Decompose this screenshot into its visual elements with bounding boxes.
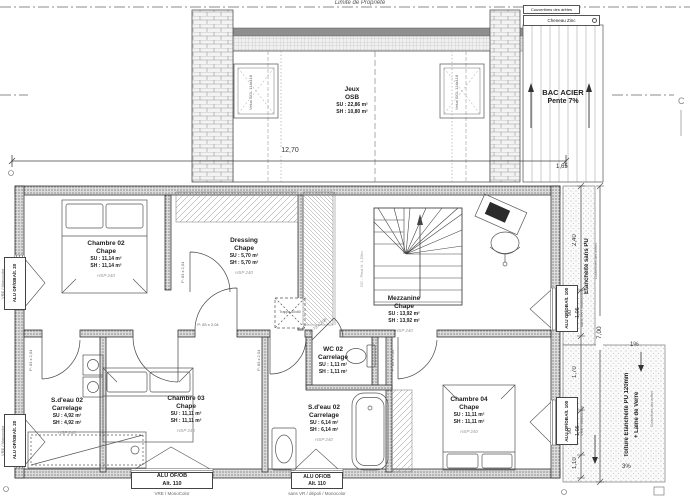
- room-hsp: HSP 240: [208, 270, 280, 276]
- room-su: SU : 13,92 m²: [368, 311, 440, 318]
- slope-1pct: 1%: [630, 342, 639, 348]
- room-name: Chambre 03: [150, 395, 222, 403]
- gutter-outlet-icon: [592, 18, 597, 23]
- trappe-label: Trappe 60x60: [276, 310, 304, 314]
- dim-total-width: 12,70: [270, 147, 310, 154]
- cheneau-box: Cheneau Zinc: [523, 15, 600, 26]
- dim-165: 1,65: [556, 164, 568, 170]
- room-su: SU : 5,70 m²: [208, 253, 280, 260]
- room-floor: Chape: [150, 403, 222, 411]
- room-label-sdeau-gauche: S.d'eau 02 Carrelage SU : 4,92 m² SH : 4…: [31, 397, 103, 435]
- room-sh: SH : 10,80 m²: [316, 109, 388, 116]
- room-floor: Chape: [70, 248, 142, 256]
- floor-plan-page: { "site": { "limite": "Limite de Proprié…: [0, 0, 690, 502]
- room-hsp: HSP 240: [368, 328, 440, 334]
- cheneau-label: Cheneau Zinc: [547, 18, 575, 23]
- room-name: Mezzanine: [368, 295, 440, 303]
- room-hsp: HSP 240: [150, 428, 222, 434]
- room-floor: Chape: [208, 245, 280, 253]
- room-name: S.d'eau 02: [288, 404, 360, 412]
- room-label-chambre03: Chambre 03 Chape SU : 11,11 m² SH : 11,1…: [150, 395, 222, 433]
- room-name: Dressing: [208, 237, 280, 245]
- room-su: SU : 4,92 m²: [31, 413, 103, 420]
- room-sh: SH : 11,11 m²: [150, 418, 222, 425]
- room-name: Jeux: [316, 86, 388, 94]
- velux-label-left: Velux GGL 114x118: [248, 72, 253, 112]
- dim-90-bottom: 90: [567, 418, 573, 444]
- toiture-note-line2: + Laine de Verre: [634, 365, 640, 465]
- room-label-mezzanine: Mezzanine Chape SU : 13,92 m² SH : 13,92…: [368, 295, 440, 333]
- window-alt: Alt. 110: [162, 481, 181, 488]
- room-su: SU : 6,14 m²: [288, 420, 360, 427]
- window-bottom-sdeau: ALU OF/OB Alt. 110: [291, 472, 343, 489]
- window-alt: Alt. 100: [564, 401, 569, 417]
- dim-90-top: 90: [567, 300, 573, 326]
- dim-110: 1,10: [572, 448, 578, 478]
- staircase: [374, 208, 462, 305]
- window-note-left-bottom: VRE / Monocolor: [0, 414, 5, 467]
- room-name: Chambre 02: [70, 240, 142, 248]
- room-label-chambre02: Chambre 02 Chape SU : 11,14 m² SH : 11,1…: [70, 240, 142, 278]
- room-sh: SH : 6,14 m²: [288, 427, 360, 434]
- room-su: SU : 22,86 m²: [316, 102, 388, 109]
- room-sh: SH : 11,14 m²: [70, 263, 142, 270]
- window-note-sans-vr: sans VR / dépoli / Monocolor: [276, 491, 358, 496]
- room-sh: SH : 1,11 m²: [300, 369, 366, 376]
- window-alt: Alt. 20: [12, 264, 17, 278]
- window-left-bottom: ALU OF/OBAlt. 20: [4, 414, 26, 467]
- window-note-vre: VRE / MonoColor: [131, 491, 213, 496]
- pente-label: Pente 7%: [526, 98, 600, 105]
- dim-240: 2,40: [572, 218, 578, 262]
- room-name: WC 02: [300, 346, 366, 354]
- room-label-chambre04: Chambre 04 Chape SU : 11,11 m² SH : 11,1…: [433, 396, 505, 434]
- room-sh: SH : 5,70 m²: [208, 260, 280, 267]
- brick-wall-left: [192, 10, 233, 182]
- slope-3pct: 3%: [622, 464, 631, 470]
- bac-acier-label: BAC ACIER: [526, 88, 600, 97]
- door-label-sdeau-milieu: P: 83 x 2,04: [256, 340, 261, 380]
- couvertines-box: Couvertines des arêtes: [523, 5, 580, 14]
- room-su: SU : 11,11 m²: [433, 412, 505, 419]
- dim-105-top: 1,05: [575, 297, 581, 329]
- window-alt: Alt. 20: [12, 421, 17, 435]
- window-left-top: ALU OF/OBAlt. 20: [4, 257, 26, 310]
- guardrail-note: GC - Plexi H. 1,50m: [359, 233, 364, 305]
- dim-170: 1,70: [572, 355, 578, 389]
- room-floor: OSB: [316, 94, 388, 102]
- room-su: SU : 11,11 m²: [150, 411, 222, 418]
- window-material: ALU OF/OB: [12, 278, 17, 303]
- couvertines-note-mid: Couvertines des arêtes: [594, 230, 598, 292]
- room-floor: Carrelage: [288, 412, 360, 420]
- door-label-corridor: P: 83 x 2,04: [186, 322, 230, 327]
- room-floor: Carrelage: [31, 405, 103, 413]
- room-label-wc02: WC 02 Carrelage SU : 1,11 m² SH : 1,11 m…: [300, 346, 366, 376]
- room-su: SU : 11,14 m²: [70, 256, 142, 263]
- room-floor: Carrelage: [300, 354, 366, 362]
- brick-wall-right: [490, 10, 520, 182]
- room-floor: Chape: [433, 404, 505, 412]
- room-label-jeux: Jeux OSB SU : 22,86 m² SH : 10,80 m²: [316, 86, 388, 116]
- room-sh: SH : 4,92 m²: [31, 420, 103, 427]
- room-floor: Chape: [368, 303, 440, 311]
- door-label-dressing: P: 83 x 2,04: [180, 250, 185, 294]
- window-material: ALU OF/OB: [12, 435, 17, 460]
- couvertines-note-right: Couvertines des arêtes: [650, 382, 654, 436]
- room-hsp: HSP 240: [433, 429, 505, 435]
- window-bottom-chambre03: ALU OF/OB Alt. 110: [131, 472, 213, 489]
- room-hsp: HSP 240: [70, 273, 142, 279]
- section-marker-c: C: [678, 96, 685, 106]
- room-label-dressing: Dressing Chape SU : 5,70 m² SH : 5,70 m²…: [208, 237, 280, 275]
- toiture-note-line1: Toiture Etanchéité PU 120mm: [624, 355, 630, 475]
- property-limit-label: Limite de Propriété: [318, 0, 402, 6]
- window-material: ALU OF/OB: [303, 474, 331, 481]
- room-name: S.d'eau 02: [31, 397, 103, 405]
- office-chair: [490, 232, 520, 266]
- door-label-chambre04: P: 83 x 2,04: [390, 340, 395, 380]
- window-openings: [15, 255, 560, 478]
- dim-105-bottom: 1,05: [575, 415, 581, 447]
- room-hsp: HSP 240: [31, 430, 103, 436]
- desk: [475, 194, 527, 235]
- window-alt: Alt. 110: [308, 481, 326, 488]
- dim-total-height: 7,00: [596, 316, 603, 350]
- room-su: SU : 1,11 m²: [300, 362, 366, 369]
- room-hsp: HSP 240: [288, 437, 360, 443]
- door-label-sdeau-gauche: P: 83 x 2,04: [28, 340, 33, 380]
- velux-label-right: Velux GGL 114x118: [454, 72, 459, 112]
- room-sh: SH : 11,11 m²: [433, 419, 505, 426]
- shower: [28, 432, 146, 468]
- room-name: Chambre 04: [433, 396, 505, 404]
- window-material: ALU OF/OB: [157, 473, 187, 480]
- room-label-sdeau-milieu: S.d'eau 02 Carrelage SU : 6,14 m² SH : 6…: [288, 404, 360, 442]
- etancheite-note: Etanchéité sans PU: [584, 196, 590, 336]
- room-sh: SH : 13,92 m²: [368, 318, 440, 325]
- window-note-left-top: VRE / Monocolor: [0, 257, 5, 310]
